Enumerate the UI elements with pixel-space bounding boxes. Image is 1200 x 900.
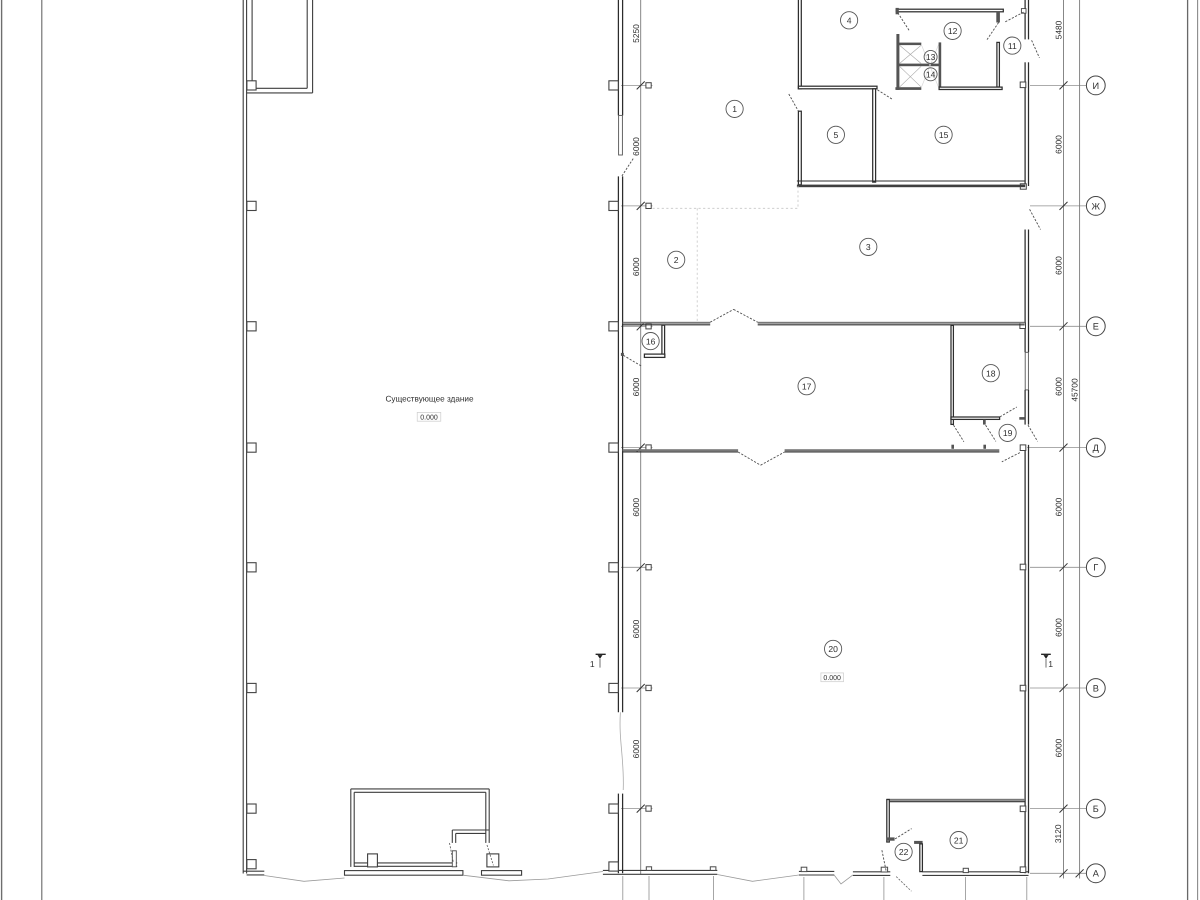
svg-text:1: 1	[732, 104, 737, 114]
svg-text:3120: 3120	[1053, 824, 1063, 843]
svg-text:21: 21	[954, 835, 964, 845]
svg-text:11: 11	[1008, 41, 1017, 51]
svg-text:22: 22	[899, 847, 909, 857]
svg-text:5250: 5250	[631, 24, 641, 43]
svg-text:6000: 6000	[1054, 256, 1064, 275]
svg-text:6000: 6000	[631, 619, 641, 638]
svg-text:В: В	[1093, 683, 1099, 693]
svg-text:6000: 6000	[1054, 618, 1064, 637]
svg-text:15: 15	[939, 130, 949, 140]
svg-text:19: 19	[1003, 428, 1013, 438]
svg-text:6000: 6000	[1054, 377, 1064, 396]
svg-text:И: И	[1092, 81, 1099, 91]
svg-text:17: 17	[802, 381, 812, 391]
svg-text:20: 20	[828, 644, 838, 654]
svg-text:0.000: 0.000	[823, 675, 841, 682]
svg-text:6000: 6000	[1054, 497, 1064, 516]
svg-text:А: А	[1093, 869, 1100, 879]
svg-text:Г: Г	[1093, 563, 1098, 573]
svg-text:Б: Б	[1093, 804, 1099, 814]
svg-text:16: 16	[646, 336, 656, 346]
svg-text:45700: 45700	[1070, 378, 1080, 402]
svg-text:6000: 6000	[1054, 738, 1064, 757]
svg-text:5: 5	[834, 130, 839, 140]
svg-text:6000: 6000	[631, 739, 641, 758]
svg-text:1: 1	[1048, 659, 1053, 669]
svg-text:2: 2	[674, 255, 679, 265]
svg-text:Е: Е	[1093, 322, 1099, 332]
svg-text:18: 18	[986, 368, 996, 378]
svg-text:Существующее здание: Существующее здание	[385, 395, 473, 404]
svg-text:Д: Д	[1093, 443, 1100, 453]
svg-text:6000: 6000	[631, 377, 641, 396]
svg-text:0.000: 0.000	[420, 415, 438, 422]
svg-text:3: 3	[866, 242, 871, 252]
svg-text:6000: 6000	[631, 257, 641, 276]
svg-text:14: 14	[926, 70, 936, 80]
svg-text:4: 4	[847, 16, 852, 26]
svg-text:13: 13	[926, 52, 936, 62]
svg-text:1: 1	[590, 659, 595, 669]
svg-text:5480: 5480	[1054, 20, 1064, 39]
svg-text:6000: 6000	[631, 137, 641, 156]
svg-text:6000: 6000	[631, 498, 641, 517]
svg-text:12: 12	[948, 26, 958, 36]
svg-text:6000: 6000	[1054, 135, 1064, 154]
svg-text:Ж: Ж	[1092, 201, 1101, 211]
